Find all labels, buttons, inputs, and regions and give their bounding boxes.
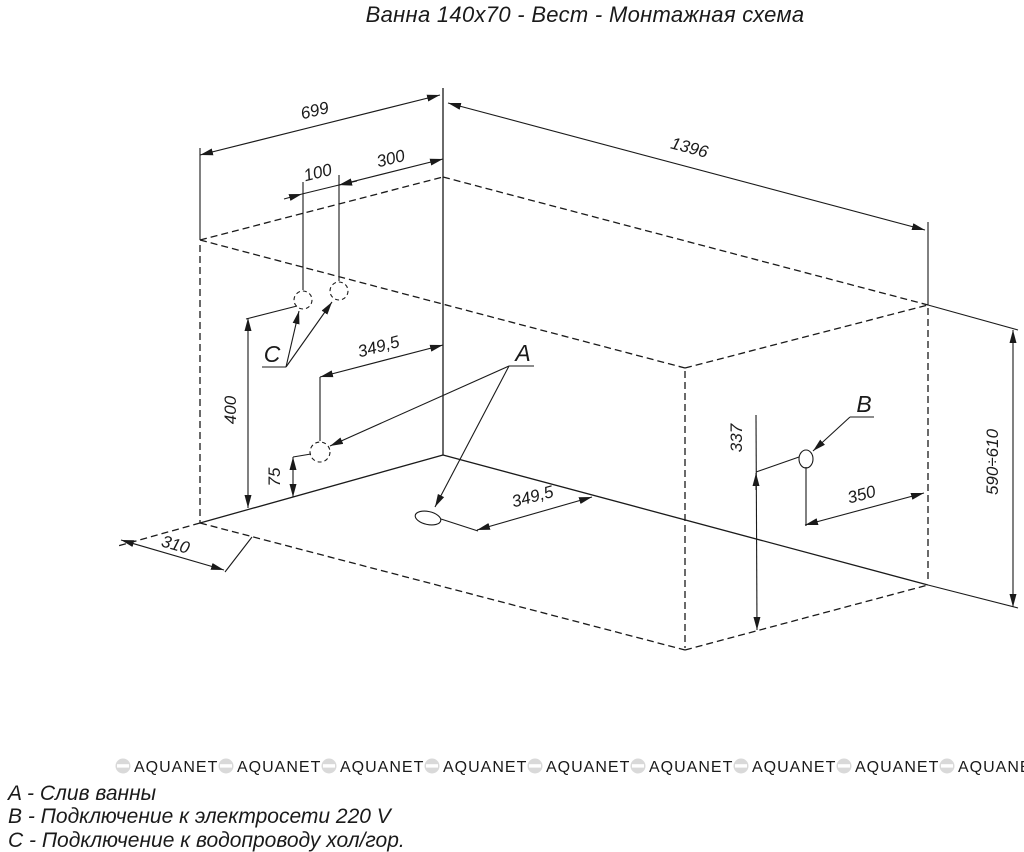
- dim-1396: 1396: [448, 103, 925, 230]
- dim-310-label: 310: [159, 532, 192, 558]
- water-connection-symbol-left: [294, 291, 312, 309]
- svg-text:AQUANET: AQUANET: [546, 759, 630, 776]
- dim-337: 337: [727, 415, 757, 630]
- svg-text:AQUANET: AQUANET: [958, 759, 1024, 776]
- svg-text:AQUANET: AQUANET: [340, 759, 424, 776]
- montage-scheme-page: Ванна 140х70 - Вест - Монтажная схема: [0, 0, 1024, 852]
- watermark-row: AQUANET AQUANET AQUANET AQUANET AQUANET …: [116, 759, 1024, 777]
- montage-scheme-drawing: Ванна 140х70 - Вест - Монтажная схема: [0, 0, 1024, 852]
- dim-1396-label: 1396: [669, 134, 711, 162]
- dim-349-5-floor: 349,5: [477, 482, 592, 530]
- dim-75: 75: [265, 457, 293, 497]
- watermark: AQUANET: [631, 759, 734, 777]
- watermark: AQUANET: [425, 759, 528, 777]
- dim-590-610: 590÷610: [983, 330, 1013, 607]
- watermark: AQUANET: [940, 759, 1024, 777]
- label-c: C: [264, 341, 281, 367]
- dim-400: 400: [221, 318, 248, 508]
- watermark: AQUANET: [837, 759, 940, 777]
- extension-lines: [200, 148, 1018, 608]
- dim-100: 100: [284, 160, 357, 199]
- drain-points: A: [310, 340, 534, 527]
- drain-floor-symbol: [414, 509, 442, 527]
- legend-item-c: C - Подключение к водопроводу хол/гор.: [8, 829, 405, 852]
- dim-100-label: 100: [302, 160, 335, 185]
- page-title: Ванна 140х70 - Вест - Монтажная схема: [366, 2, 805, 27]
- watermark: AQUANET: [322, 759, 425, 777]
- svg-text:AQUANET: AQUANET: [752, 759, 836, 776]
- dim-400-label: 400: [221, 395, 240, 424]
- dim-590-610-label: 590÷610: [983, 428, 1002, 495]
- dim-350-label: 350: [845, 482, 878, 508]
- dim-349-5-wall: 349,5: [320, 332, 443, 377]
- watermark: AQUANET: [528, 759, 631, 777]
- svg-text:AQUANET: AQUANET: [855, 759, 939, 776]
- dim-300-label: 300: [375, 146, 408, 171]
- water-connection-points: C: [262, 282, 348, 367]
- legend-item-b: B - Подключение к электросети 220 V: [8, 805, 393, 828]
- legend: A - Слив ванны B - Подключение к электро…: [6, 782, 405, 852]
- legend-item-a: A - Слив ванны: [6, 782, 157, 805]
- electric-connection-symbol: [799, 450, 813, 468]
- watermark: AQUANET: [734, 759, 837, 777]
- dim-310: 310: [121, 532, 224, 570]
- dim-75-label: 75: [265, 467, 284, 486]
- dim-349-5-floor-label: 349,5: [510, 482, 557, 512]
- svg-text:AQUANET: AQUANET: [237, 759, 321, 776]
- dim-699-label: 699: [299, 98, 332, 123]
- water-connection-symbol-right: [330, 282, 348, 300]
- label-b: B: [856, 391, 871, 417]
- dim-337-label: 337: [727, 423, 746, 452]
- electric-connection-point: B: [799, 391, 874, 468]
- watermark: AQUANET: [219, 759, 322, 777]
- watermark: AQUANET: [116, 759, 219, 777]
- svg-text:AQUANET: AQUANET: [134, 759, 218, 776]
- dim-300: 300: [339, 146, 443, 185]
- label-a: A: [513, 340, 530, 366]
- svg-text:AQUANET: AQUANET: [443, 759, 527, 776]
- dim-699: 699: [200, 95, 440, 155]
- svg-text:AQUANET: AQUANET: [649, 759, 733, 776]
- drain-wall-symbol: [310, 442, 330, 462]
- dim-350: 350: [805, 482, 924, 525]
